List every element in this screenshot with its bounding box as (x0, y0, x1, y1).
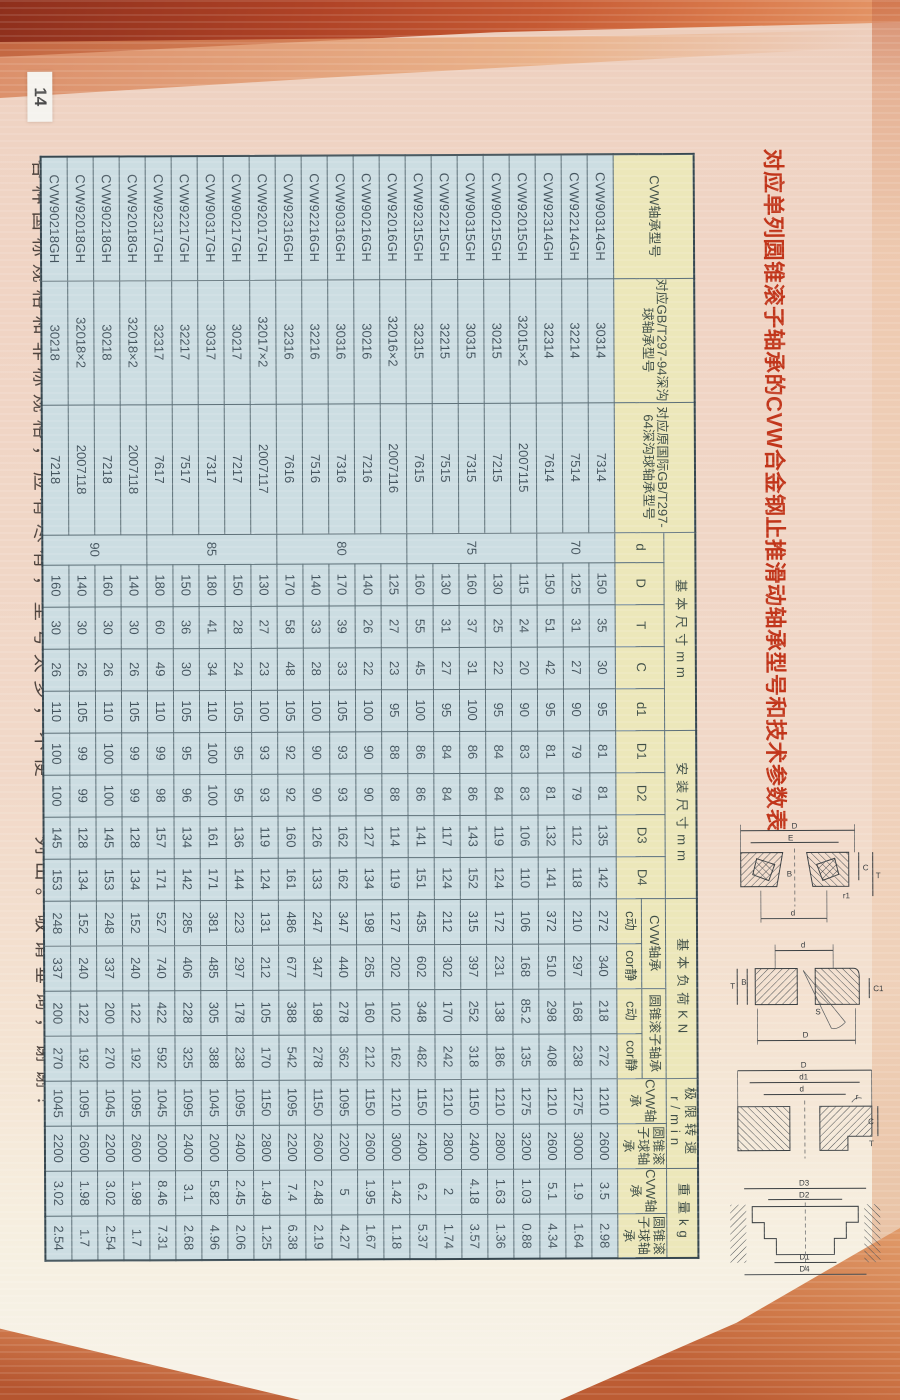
value-cell: 30216 (354, 279, 381, 403)
table-row: CVW90314GH303147314701503530958181135142… (587, 154, 618, 1258)
value-cell: 99 (70, 733, 96, 775)
value-cell: 100 (356, 689, 382, 731)
value-cell: 285 (174, 900, 200, 945)
value-cell: 200 (97, 991, 123, 1036)
value-cell: 152 (70, 901, 96, 946)
value-cell: 1275 (513, 1079, 539, 1124)
value-cell: 180 (199, 564, 225, 606)
value-cell: 93 (330, 731, 356, 773)
value-cell: 362 (331, 1035, 357, 1080)
value-cell: 8.46 (150, 1170, 176, 1215)
value-cell: 81 (590, 730, 616, 772)
value-cell: 132 (538, 815, 564, 857)
value-cell: 23 (251, 648, 277, 690)
value-cell: 1210 (383, 1079, 409, 1124)
value-cell: 1045 (97, 1081, 123, 1126)
value-cell: 170 (253, 1035, 279, 1080)
value-cell: 106 (512, 815, 538, 857)
value-cell: 238 (565, 1033, 591, 1078)
value-cell: 160 (278, 816, 304, 858)
value-cell: 2.06 (228, 1215, 254, 1260)
value-cell: 105 (253, 990, 279, 1035)
value-cell: 242 (435, 1034, 461, 1079)
dim-label: D3 (799, 1178, 810, 1187)
value-cell: 24 (225, 648, 251, 690)
value-cell: 198 (356, 899, 382, 944)
header-T: T (615, 604, 664, 646)
value-cell: 1045 (201, 1080, 227, 1125)
table-row: CVW90217GH302177217150282410595951361442… (223, 156, 254, 1260)
value-cell: 27 (563, 646, 589, 688)
model-cell: CVW90216GH (353, 155, 380, 279)
value-cell: 1095 (279, 1080, 305, 1125)
value-cell: 138 (487, 989, 513, 1034)
value-cell: 85.2 (513, 989, 539, 1034)
table-row: CVW90315GH303157315160373110086861431523… (457, 155, 488, 1259)
value-cell: 7.31 (150, 1215, 176, 1260)
value-cell: 110 (43, 691, 70, 733)
value-cell: 7218 (42, 405, 69, 535)
value-cell: 2800 (253, 1125, 279, 1170)
value-cell: 1095 (227, 1080, 253, 1125)
dim-label: D2 (799, 1190, 810, 1199)
value-cell: 100 (304, 690, 330, 732)
value-cell: 397 (461, 944, 487, 989)
value-cell: 60 (147, 606, 173, 648)
value-cell: 32317 (146, 280, 173, 404)
value-cell: 140 (69, 565, 95, 607)
value-cell: 2.68 (176, 1215, 202, 1260)
value-cell: 22 (355, 647, 381, 689)
value-cell: 145 (96, 816, 122, 858)
value-cell: 135 (513, 1034, 539, 1079)
value-cell: 49 (147, 648, 173, 690)
dim-label: E (788, 834, 793, 843)
value-cell: 2.54 (98, 1216, 124, 1261)
value-cell: 372 (538, 899, 564, 944)
model-cell: CVW90317GH (197, 156, 224, 280)
model-cell: CVW90217GH (223, 156, 250, 280)
value-cell: 119 (252, 816, 278, 858)
value-cell: 128 (122, 816, 148, 858)
value-cell: 122 (71, 991, 97, 1036)
model-cell: CVW92314GH (535, 155, 562, 279)
value-cell: 30218 (94, 280, 121, 404)
value-cell: 1.64 (566, 1214, 592, 1259)
value-cell: 388 (201, 1035, 227, 1080)
value-cell: 228 (175, 990, 201, 1035)
value-cell: 2400 (175, 1125, 201, 1170)
model-cell: CVW90314GH (587, 154, 614, 278)
value-cell: 3200 (513, 1124, 539, 1169)
table-row: CVW92018GH32018×220071181403026105999912… (67, 157, 98, 1261)
value-cell: 33 (303, 606, 329, 648)
value-cell: 406 (175, 945, 201, 990)
value-cell: 27 (381, 605, 407, 647)
model-cell: CVW90315GH (457, 155, 484, 279)
value-cell: 247 (304, 900, 330, 945)
value-cell: 86 (460, 773, 486, 815)
value-cell: 114 (382, 815, 408, 857)
value-cell: 105 (70, 691, 96, 733)
value-cell: 99 (148, 732, 174, 774)
model-cell: CVW92315GH (405, 155, 432, 279)
value-cell: 30314 (588, 278, 615, 402)
bore-cell: 75 (407, 533, 537, 564)
value-cell: 381 (200, 900, 226, 945)
model-cell: CVW92317GH (145, 156, 172, 280)
value-cell: 126 (304, 816, 330, 858)
header-D2: D2 (616, 772, 665, 814)
value-cell: 347 (330, 900, 356, 945)
value-cell: 32016×2 (380, 279, 407, 403)
value-cell: 100 (408, 689, 434, 731)
header-speed-taper: 圆锥滚子球轴承 (617, 1123, 666, 1168)
value-cell: 198 (305, 990, 331, 1035)
dim-label: B (741, 978, 746, 987)
header-load-cvw: CVW轴承 (641, 898, 665, 988)
value-cell: 325 (175, 1035, 201, 1080)
value-cell: 33 (329, 647, 355, 689)
header-load-taper: 圆锥滚子轴承 (642, 988, 666, 1078)
header-gb-new: 对应GB/T297-94深沟球轴承型号 (614, 278, 695, 402)
value-cell: 110 (96, 690, 122, 732)
value-cell: 84 (434, 731, 460, 773)
value-cell: 2.48 (306, 1170, 332, 1215)
value-cell: 152 (460, 857, 486, 899)
model-cell: CVW92216GH (301, 156, 328, 280)
page-number: 14 (30, 87, 50, 106)
value-cell: 1.03 (514, 1169, 540, 1214)
table-row: CVW92216GH322167516140332810090901261332… (301, 156, 332, 1260)
value-cell: 7317 (198, 404, 225, 534)
value-cell: 102 (383, 989, 409, 1034)
dim-label: d1 (799, 1072, 808, 1081)
value-cell: 171 (200, 858, 226, 900)
table-row: CVW92215GH322157515130312795848411712421… (431, 155, 462, 1259)
value-cell: 95 (382, 689, 408, 731)
value-cell: 297 (227, 945, 253, 990)
value-cell: 482 (409, 1034, 435, 1079)
table-body: CVW90314GH303147314701503530958181135142… (41, 154, 618, 1261)
value-cell: 79 (564, 772, 590, 814)
value-cell: 2.19 (306, 1215, 332, 1260)
dim-label: S (815, 1007, 820, 1016)
value-cell: 2007116 (380, 403, 407, 533)
bore-cell: 85 (147, 534, 277, 565)
value-cell: 2.54 (45, 1216, 72, 1261)
value-cell: 2600 (123, 1125, 149, 1170)
value-cell: 32018×2 (120, 280, 147, 404)
value-cell: 98 (148, 774, 174, 816)
value-cell: 7316 (328, 403, 355, 533)
value-cell: 134 (356, 857, 382, 899)
value-cell: 6.38 (280, 1215, 306, 1260)
value-cell: 127 (356, 815, 382, 857)
value-cell: 93 (252, 774, 278, 816)
value-cell: 160 (459, 563, 485, 605)
table-row: CVW92315GH323157615160554510086861411514… (405, 155, 436, 1259)
value-cell: 134 (174, 816, 200, 858)
dim-label: T (876, 871, 881, 880)
value-cell: 5.37 (410, 1214, 436, 1259)
value-cell: 119 (382, 857, 408, 899)
value-cell: 26 (121, 648, 147, 690)
value-cell: 86 (460, 731, 486, 773)
header-D4: D4 (616, 856, 665, 898)
value-cell: 1095 (175, 1080, 201, 1125)
value-cell: 318 (461, 1034, 487, 1079)
value-cell: 168 (565, 988, 591, 1033)
value-cell: 88 (382, 773, 408, 815)
value-cell: 186 (487, 1034, 513, 1079)
value-cell: 2000 (149, 1125, 175, 1170)
value-cell: 1.49 (254, 1170, 280, 1215)
value-cell: 84 (486, 731, 512, 773)
value-cell: 32316 (276, 280, 303, 404)
value-cell: 110 (200, 690, 226, 732)
value-cell: 7616 (276, 404, 303, 534)
value-cell: 30 (43, 607, 70, 649)
value-cell: 2600 (357, 1124, 383, 1169)
value-cell: 305 (201, 990, 227, 1035)
dim-label: C1 (873, 984, 884, 993)
value-cell: 4.18 (462, 1169, 488, 1214)
value-cell: 95 (434, 689, 460, 731)
value-cell: 140 (355, 563, 381, 605)
value-cell: 157 (148, 816, 174, 858)
value-cell: 30218 (41, 281, 68, 405)
model-cell: CVW92016GH (379, 155, 406, 279)
value-cell: 84 (486, 773, 512, 815)
value-cell: 388 (279, 990, 305, 1035)
dim-label: d (799, 1084, 803, 1093)
value-cell: 168 (513, 944, 539, 989)
value-cell: 3000 (383, 1124, 409, 1169)
dim-label: r (856, 1092, 859, 1101)
page-number-chip: 14 (27, 72, 52, 122)
value-cell: 1.98 (124, 1170, 150, 1215)
value-cell: 315 (460, 899, 486, 944)
value-cell: 160 (43, 565, 70, 607)
value-cell: 32216 (302, 280, 329, 404)
dim-label: D (792, 821, 798, 830)
value-cell: 160 (357, 989, 383, 1034)
value-cell: 2007118 (120, 404, 147, 534)
value-cell: 485 (201, 945, 227, 990)
value-cell: 35 (589, 604, 615, 646)
value-cell: 124 (434, 857, 460, 899)
bearing-diagrams-svg: D E B r1 C T d (727, 818, 887, 1285)
value-cell: 39 (329, 605, 355, 647)
table-row: CVW92314GH323147614150514295818113214137… (535, 155, 566, 1259)
value-cell: 32017×2 (250, 280, 277, 404)
value-cell: 1.98 (72, 1171, 98, 1216)
value-cell: 178 (227, 990, 253, 1035)
value-cell: 2200 (279, 1125, 305, 1170)
value-cell: 1150 (253, 1080, 279, 1125)
value-cell: 1150 (357, 1079, 383, 1124)
value-cell: 2800 (487, 1124, 513, 1169)
value-cell: 92 (278, 732, 304, 774)
value-cell: 7614 (536, 403, 563, 533)
value-cell: 7218 (94, 404, 121, 534)
value-cell: 7216 (354, 403, 381, 533)
table-row: CVW92214GH322147514125312790797911211821… (561, 154, 592, 1258)
value-cell: 602 (409, 944, 435, 989)
table-row: CVW90216GH302167216140262210090901271341… (353, 155, 384, 1259)
value-cell: 124 (486, 857, 512, 899)
value-cell: 1.95 (358, 1169, 384, 1214)
table-row: CVW92217GH322177517150363010595961341422… (171, 156, 202, 1260)
value-cell: 141 (408, 815, 434, 857)
value-cell: 240 (123, 945, 149, 990)
value-cell: 2.45 (228, 1170, 254, 1215)
model-cell: CVW92215GH (431, 155, 458, 279)
value-cell: 140 (303, 564, 329, 606)
value-cell: 81 (590, 772, 616, 814)
table-row: CVW92015GH32015×220071157511524209083831… (509, 155, 540, 1259)
value-cell: 93 (252, 732, 278, 774)
value-cell: 48 (277, 648, 303, 690)
value-cell: 7615 (406, 403, 433, 533)
value-cell: 5.1 (540, 1169, 566, 1214)
dim-label: r1 (843, 891, 851, 900)
parameters-table: CVW轴承型号 对应GB/T297-94深沟球轴承型号 对应原国际GB/T297… (40, 153, 700, 1262)
value-cell: 86 (408, 773, 434, 815)
value-cell: 153 (96, 858, 122, 900)
value-cell: 93 (330, 773, 356, 815)
header-mount-dims: 安装尺寸mm (665, 730, 697, 898)
dim-label: D1 (799, 1252, 810, 1261)
dim-label: D (803, 1030, 809, 1039)
value-cell: 142 (590, 856, 616, 898)
value-cell: 202 (383, 944, 409, 989)
value-cell: 151 (408, 857, 434, 899)
value-cell: 1.36 (488, 1214, 514, 1259)
value-cell: 192 (123, 1035, 149, 1080)
value-cell: 162 (330, 815, 356, 857)
value-cell: 270 (97, 1036, 123, 1081)
value-cell: 212 (434, 899, 460, 944)
value-cell: 32018×2 (68, 281, 95, 405)
value-cell: 32217 (172, 280, 199, 404)
value-cell: 142 (174, 858, 200, 900)
value-cell: 90 (356, 731, 382, 773)
value-cell: 210 (564, 898, 590, 943)
value-cell: 130 (485, 563, 511, 605)
header-C: C (615, 646, 664, 688)
value-cell: 32215 (432, 279, 459, 403)
value-cell: 145 (44, 817, 71, 859)
value-cell: 3.02 (98, 1171, 124, 1216)
header-D3: D3 (616, 814, 665, 856)
value-cell: 161 (200, 816, 226, 858)
value-cell: 592 (149, 1035, 175, 1080)
value-cell: 100 (252, 690, 278, 732)
value-cell: 2 (436, 1169, 462, 1214)
model-cell: CVW92017GH (249, 156, 276, 280)
value-cell: 32214 (562, 278, 589, 402)
value-cell: 90 (304, 732, 330, 774)
value-cell: 26 (95, 648, 121, 690)
value-cell: 100 (200, 774, 226, 816)
value-cell: 141 (538, 857, 564, 899)
value-cell: 45 (407, 647, 433, 689)
value-cell: 81 (538, 731, 564, 773)
value-cell: 144 (226, 858, 252, 900)
value-cell: 26 (355, 605, 381, 647)
value-cell: 105 (122, 690, 148, 732)
value-cell: 150 (589, 562, 615, 604)
table-row: CVW92316GH323167616170584810592921601614… (275, 156, 306, 1260)
value-cell: 153 (44, 859, 71, 901)
value-cell: 37 (459, 605, 485, 647)
value-cell: 740 (149, 945, 175, 990)
value-cell: 2600 (539, 1124, 565, 1169)
value-cell: 1095 (71, 1081, 97, 1126)
value-cell: 408 (539, 1034, 565, 1079)
table-row: CVW92016GH32016×220071168012527239588881… (379, 155, 410, 1259)
value-cell: 83 (512, 731, 538, 773)
dim-label: T (869, 1139, 874, 1148)
value-cell: 131 (252, 900, 278, 945)
value-cell: 1045 (45, 1081, 72, 1126)
header-d: d (615, 532, 664, 562)
value-cell: 2200 (331, 1125, 357, 1170)
dim-label: d (791, 908, 795, 917)
value-cell: 278 (305, 1035, 331, 1080)
value-cell: 422 (149, 990, 175, 1035)
bearing-diagrams: D E B r1 C T d (727, 818, 887, 1285)
value-cell: 5.82 (202, 1170, 228, 1215)
value-cell: 3000 (565, 1123, 591, 1168)
value-cell: 200 (44, 991, 71, 1036)
value-cell: 527 (148, 900, 174, 945)
value-cell: 340 (591, 943, 617, 988)
value-cell: 170 (277, 564, 303, 606)
value-cell: 170 (329, 563, 355, 605)
value-cell: 99 (70, 775, 96, 817)
value-cell: 28 (225, 606, 251, 648)
value-cell: 31 (459, 647, 485, 689)
value-cell: 3.02 (45, 1171, 72, 1216)
value-cell: 30 (121, 606, 147, 648)
dim-label: C (863, 863, 869, 872)
value-cell: 160 (407, 563, 433, 605)
value-cell: 2.98 (592, 1213, 618, 1258)
value-cell: 171 (148, 858, 174, 900)
value-cell: 7515 (432, 403, 459, 533)
bore-cell: 80 (277, 533, 407, 564)
header-d1: d1 (616, 688, 665, 730)
value-cell: 240 (71, 946, 97, 991)
value-cell: 2200 (45, 1126, 72, 1171)
value-cell: 136 (226, 816, 252, 858)
value-cell: 25 (485, 605, 511, 647)
value-cell: 1150 (305, 1080, 331, 1125)
value-cell: 248 (44, 901, 71, 946)
value-cell: 223 (226, 900, 252, 945)
value-cell: 1150 (409, 1079, 435, 1124)
header-load: 基本负荷KN (665, 898, 697, 1078)
value-cell: 130 (251, 564, 277, 606)
bore-cell: 70 (537, 532, 615, 562)
value-cell: 105 (278, 690, 304, 732)
model-cell: CVW90316GH (327, 155, 354, 279)
value-cell: 172 (486, 899, 512, 944)
value-cell: 2400 (227, 1125, 253, 1170)
